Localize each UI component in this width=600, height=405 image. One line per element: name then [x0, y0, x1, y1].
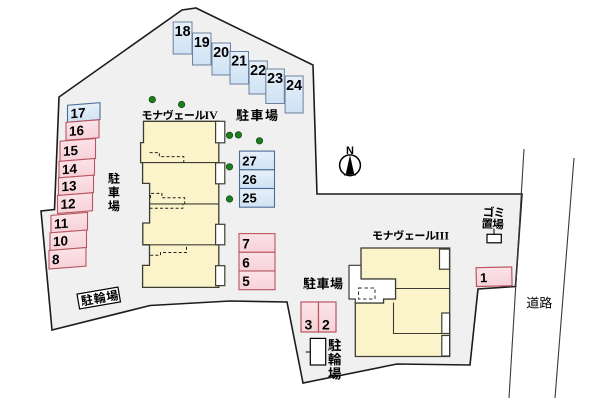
svg-text:8: 8 — [52, 252, 60, 268]
svg-text:19: 19 — [194, 35, 210, 51]
svg-text:2: 2 — [322, 317, 330, 333]
svg-text:1: 1 — [480, 270, 488, 285]
svg-text:21: 21 — [231, 54, 247, 70]
svg-text:11: 11 — [54, 216, 69, 232]
svg-text:6: 6 — [242, 255, 250, 270]
svg-text:N: N — [346, 145, 354, 157]
svg-text:3: 3 — [305, 317, 313, 333]
svg-text:10: 10 — [53, 233, 68, 249]
svg-text:12: 12 — [61, 196, 76, 212]
svg-text:23: 23 — [267, 71, 283, 87]
svg-text:5: 5 — [242, 274, 250, 289]
svg-text:14: 14 — [62, 161, 77, 177]
svg-text:17: 17 — [71, 105, 86, 121]
svg-text:III: III — [435, 229, 449, 243]
svg-text:20: 20 — [213, 45, 229, 61]
svg-text:25: 25 — [242, 191, 256, 206]
svg-text:IV: IV — [205, 108, 219, 122]
svg-text:27: 27 — [242, 153, 256, 168]
svg-text:26: 26 — [242, 172, 256, 187]
svg-text:16: 16 — [69, 123, 84, 139]
svg-text:13: 13 — [62, 178, 77, 194]
svg-text:24: 24 — [286, 78, 302, 94]
svg-text:7: 7 — [242, 237, 250, 252]
svg-text:15: 15 — [63, 143, 78, 159]
svg-text:22: 22 — [250, 63, 266, 79]
svg-text:18: 18 — [175, 24, 191, 40]
